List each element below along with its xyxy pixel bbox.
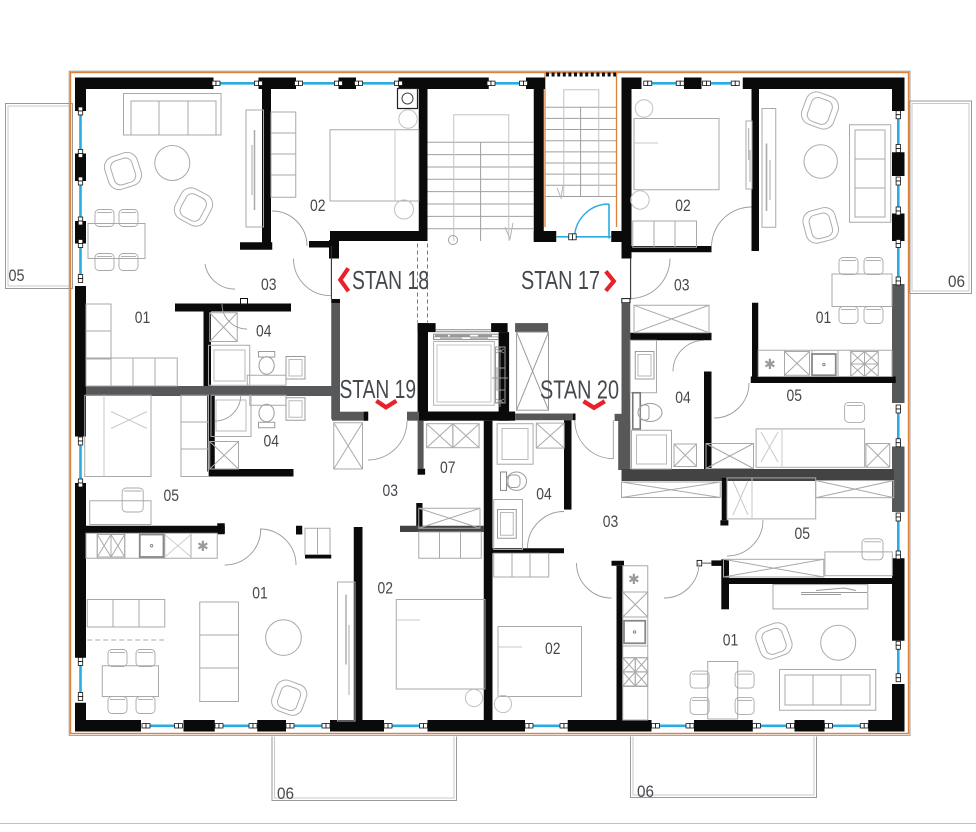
svg-text:02: 02	[310, 196, 326, 215]
svg-text:04: 04	[264, 432, 280, 451]
svg-text:01: 01	[723, 630, 739, 649]
svg-text:02: 02	[545, 639, 561, 658]
svg-text:STAN 17: STAN 17	[521, 265, 600, 295]
svg-text:04: 04	[536, 485, 552, 504]
svg-text:01: 01	[816, 308, 832, 327]
svg-text:STAN 18: STAN 18	[352, 265, 429, 295]
svg-text:02: 02	[378, 578, 394, 597]
svg-text:06: 06	[637, 782, 654, 801]
svg-text:05: 05	[164, 486, 180, 505]
svg-text:05: 05	[9, 266, 25, 285]
svg-text:✱: ✱	[628, 571, 640, 587]
svg-text:STAN 20: STAN 20	[540, 375, 619, 405]
svg-text:05: 05	[795, 524, 811, 543]
svg-text:03: 03	[383, 481, 399, 500]
svg-text:04: 04	[256, 322, 272, 341]
svg-text:05: 05	[787, 386, 803, 405]
svg-text:02: 02	[675, 196, 691, 215]
svg-text:03: 03	[674, 275, 690, 294]
svg-text:07: 07	[440, 458, 456, 477]
svg-text:01: 01	[135, 308, 151, 327]
svg-text:03: 03	[261, 275, 277, 294]
svg-text:06: 06	[277, 784, 294, 803]
svg-text:01: 01	[252, 583, 268, 602]
svg-text:03: 03	[603, 512, 619, 531]
svg-text:✱: ✱	[764, 356, 776, 372]
svg-text:04: 04	[675, 388, 691, 407]
svg-text:✱: ✱	[197, 538, 209, 554]
svg-text:06: 06	[948, 272, 965, 291]
